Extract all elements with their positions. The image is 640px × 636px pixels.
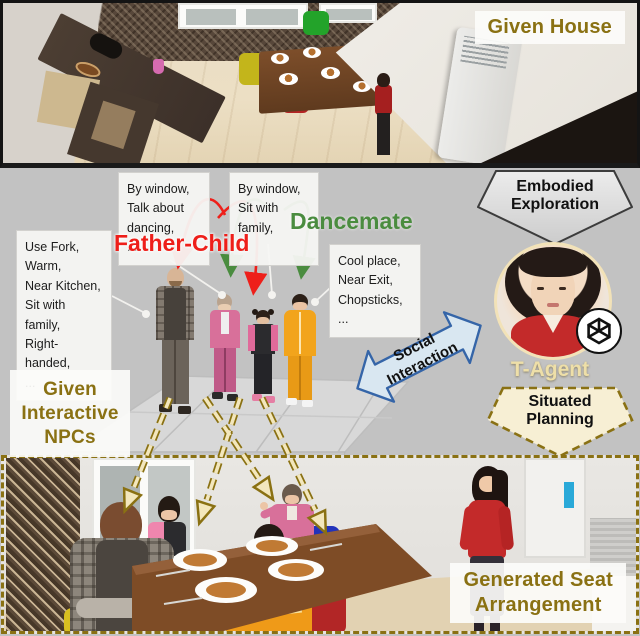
given-house-panel: Given House (0, 0, 640, 168)
dancemate-label: Dancemate (290, 208, 413, 235)
situated-planning-label: Situated Planning (486, 393, 634, 430)
seated-father (62, 502, 182, 632)
npc-mother (206, 294, 244, 406)
situated-planning-arrow: Situated Planning (486, 386, 634, 458)
plate (271, 53, 289, 64)
agent-figure-head (377, 73, 390, 87)
given-house-label: Given House (475, 11, 625, 44)
figure-root: Given House (0, 0, 640, 636)
door (524, 458, 586, 558)
father-child-label: Father-Child (114, 230, 249, 257)
plate (321, 67, 340, 79)
green-chair (303, 11, 329, 35)
given-interactive-npcs-label: Given Interactive NPCs (10, 370, 130, 457)
agent-figure-legs (377, 113, 390, 155)
plate (279, 73, 298, 85)
generated-seat-arrangement-label: Generated Seat Arrangement (450, 563, 626, 623)
pink-cup (153, 59, 164, 74)
embodied-exploration-arrow: Embodied Exploration (477, 170, 633, 246)
plate (303, 47, 321, 58)
seat-arrangement-panel: Generated Seat Arrangement (1, 455, 639, 634)
embodied-exploration-label: Embodied Exploration (477, 178, 633, 215)
agent-figure-body (375, 85, 392, 115)
npc-child (248, 308, 278, 408)
window (178, 3, 308, 29)
npc-kid-orange (280, 294, 320, 410)
seated-kid-orange (220, 524, 316, 634)
npc-father (150, 268, 200, 418)
house-3d-scene: Given House (3, 3, 637, 163)
openai-logo-icon (576, 308, 622, 354)
t-agent-label: T-Agent (492, 358, 608, 382)
pipeline-panel: Use Fork, Warm, Near Kitchen, Sit with f… (0, 168, 640, 455)
